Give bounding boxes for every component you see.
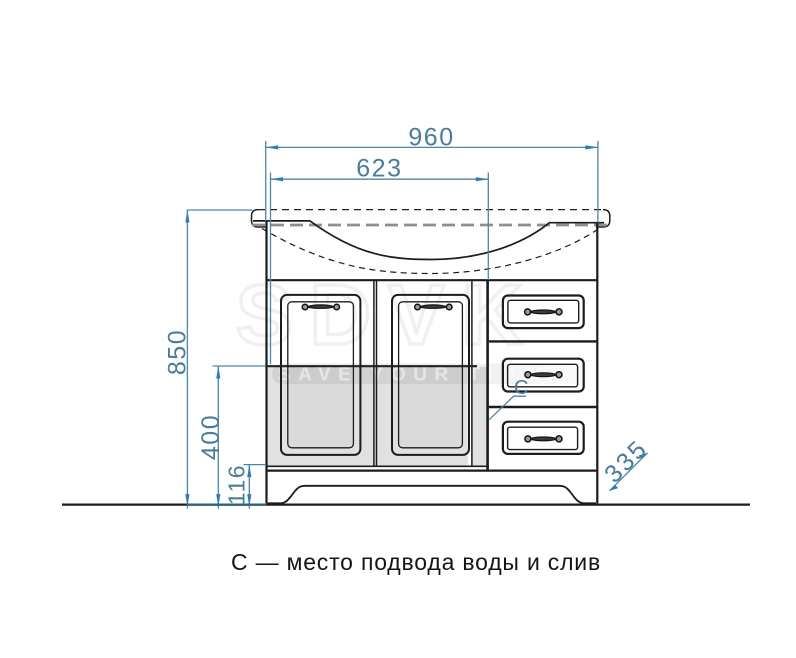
- svg-text:623: 623: [356, 155, 402, 183]
- svg-text:960: 960: [408, 124, 454, 152]
- svg-text:116: 116: [224, 464, 250, 505]
- svg-text:С: С: [514, 377, 528, 399]
- svg-text:400: 400: [197, 414, 225, 460]
- svg-text:850: 850: [164, 329, 192, 375]
- svg-text:С — место подвода воды и слив: С — место подвода воды и слив: [231, 549, 601, 575]
